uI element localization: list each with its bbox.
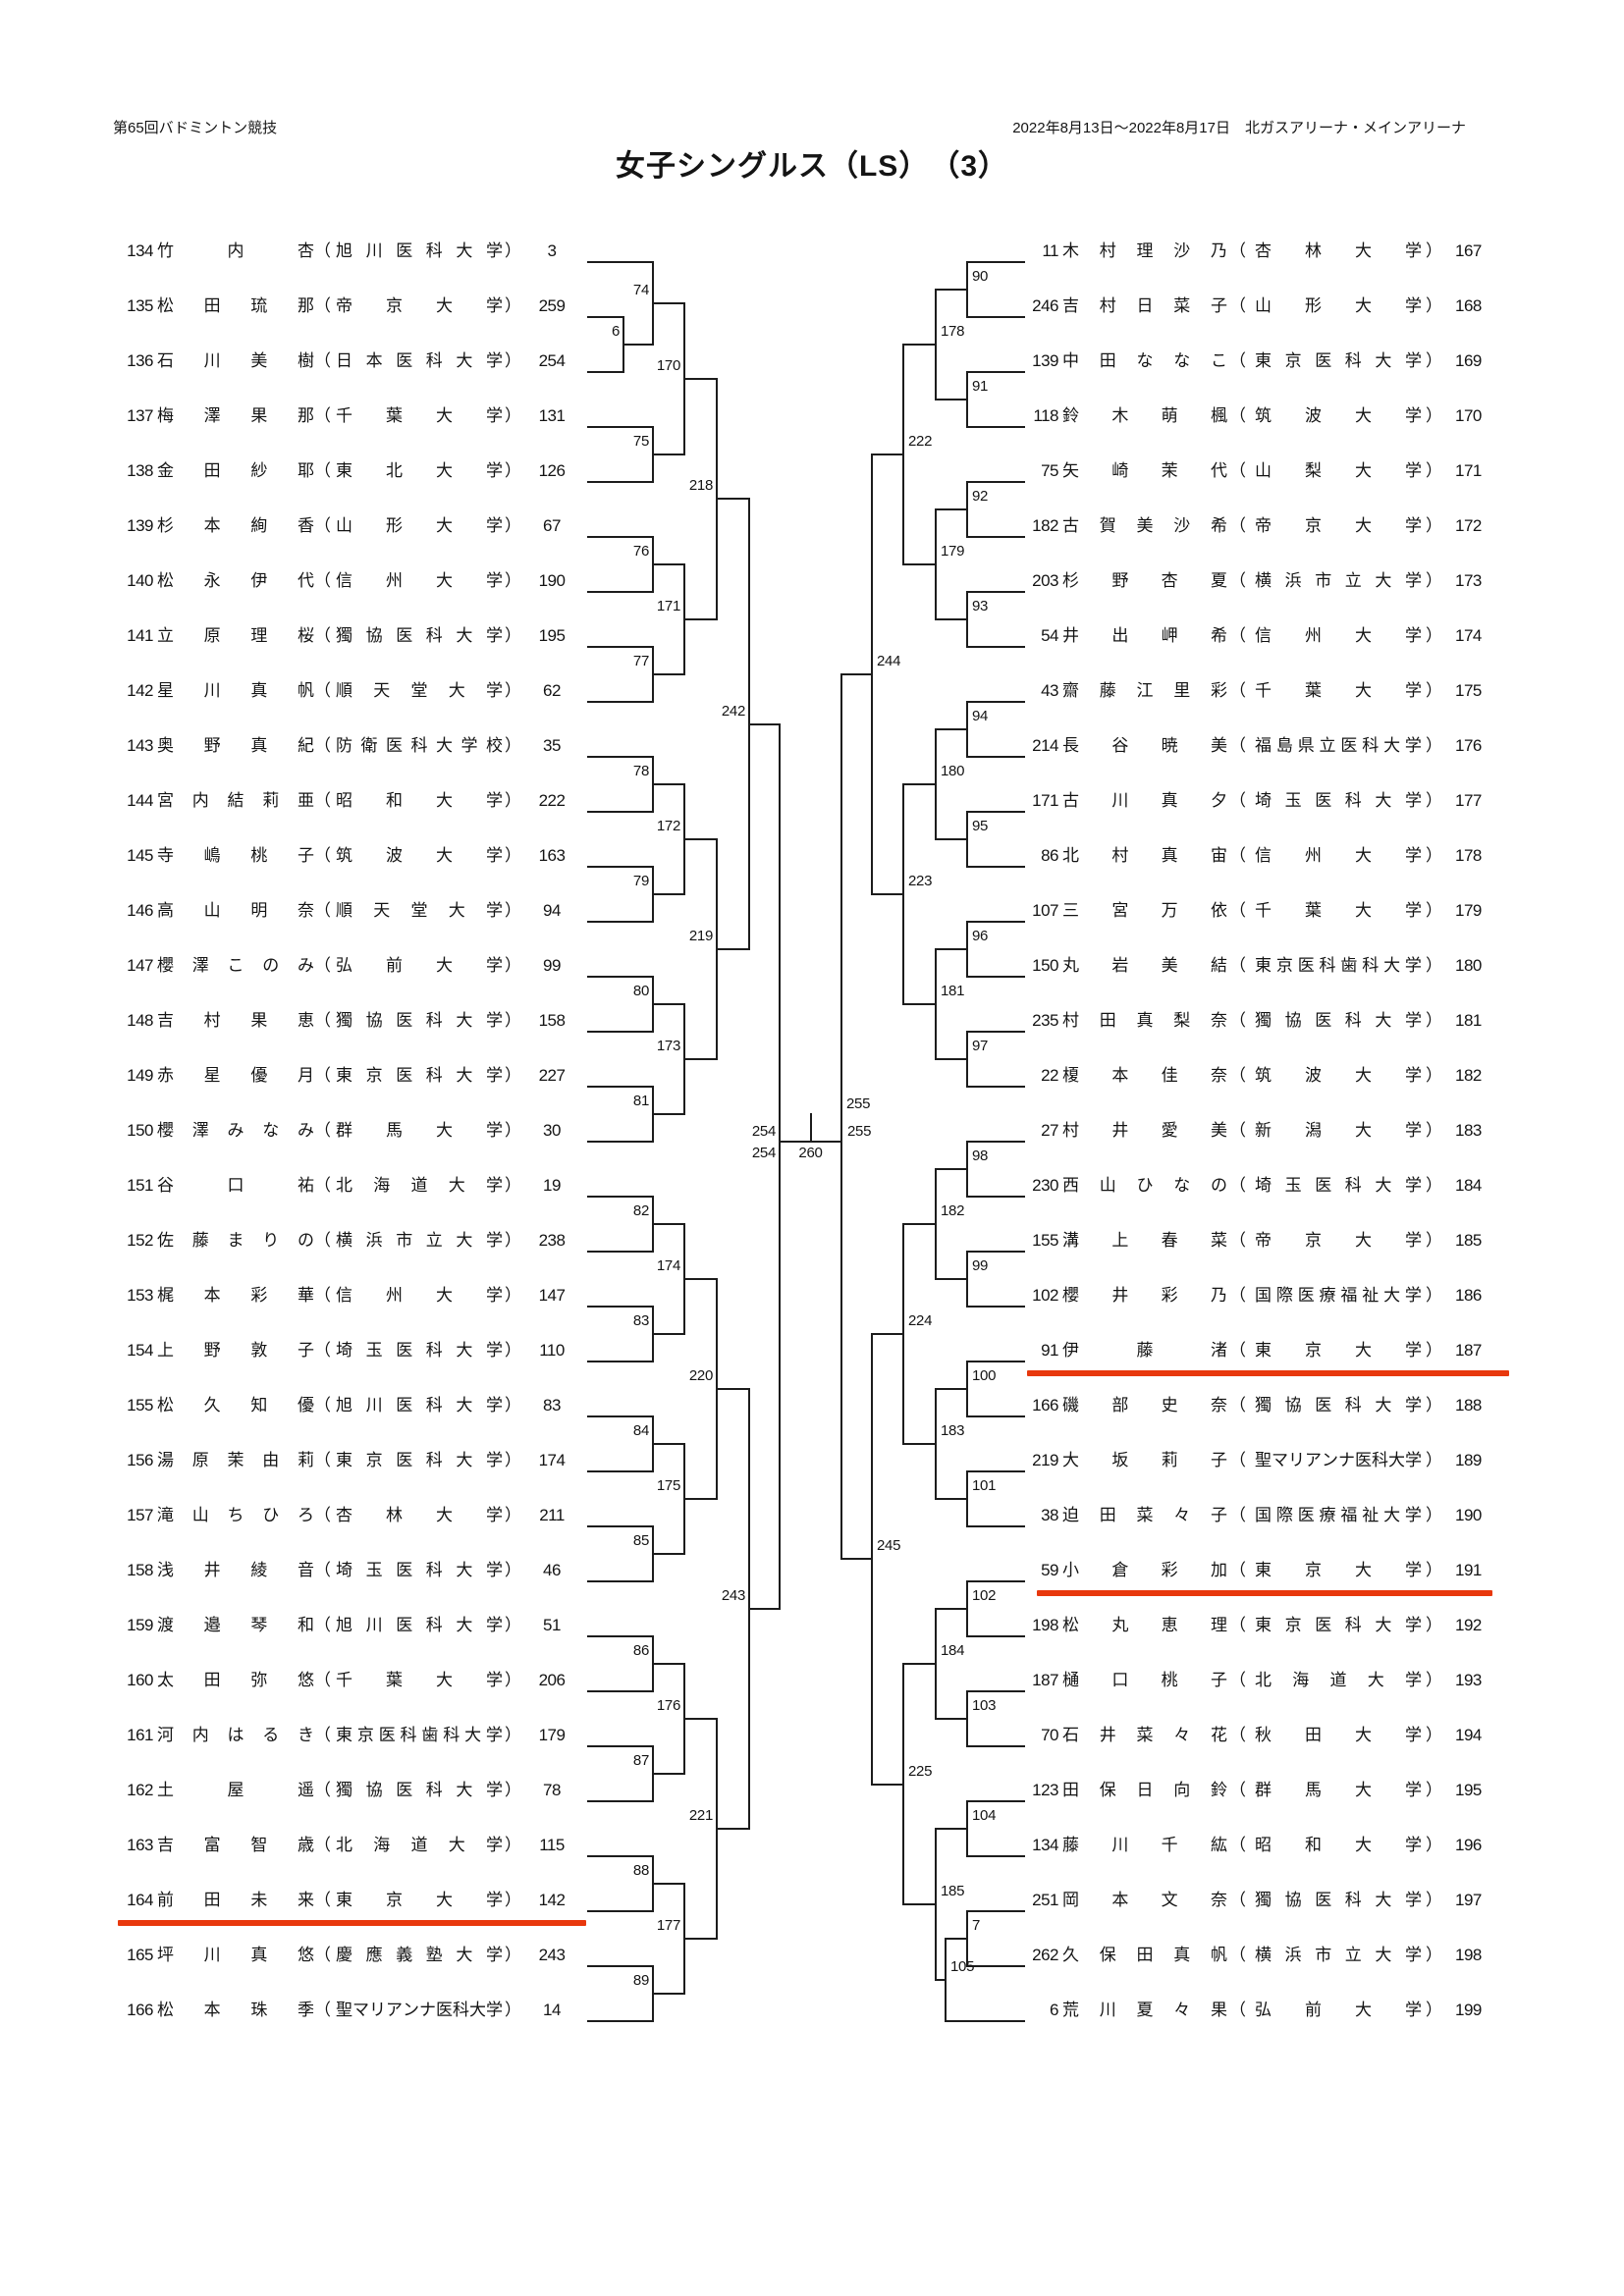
player-school: 帝京大学 bbox=[1255, 516, 1422, 536]
draw-number: 178 bbox=[1455, 846, 1514, 866]
left-player-row: 149赤星優月（東京医科大学）227 bbox=[116, 1066, 587, 1086]
left-player-row: 156湯原茉由莉（東京医科大学）174 bbox=[116, 1451, 587, 1470]
player-number: 123 bbox=[1027, 1781, 1058, 1800]
player-school: 杏林大学 bbox=[1255, 241, 1422, 261]
draw-number: 168 bbox=[1455, 296, 1514, 316]
left-player-row: 147櫻澤このみ（弘前大学）99 bbox=[116, 956, 587, 976]
player-number: 142 bbox=[116, 681, 153, 701]
seed-number: 3 bbox=[522, 241, 581, 261]
entry-line bbox=[967, 921, 1025, 923]
match-number: 254 bbox=[717, 1146, 776, 1161]
entry-line bbox=[967, 426, 1025, 428]
winner-line bbox=[653, 1003, 684, 1005]
winner-line bbox=[684, 1278, 717, 1280]
player-school: 信州大学 bbox=[1255, 626, 1422, 646]
player-school: 北海道大学 bbox=[1255, 1671, 1422, 1690]
seed-number: 110 bbox=[522, 1341, 581, 1361]
player-number: 136 bbox=[116, 351, 153, 371]
match-number: 244 bbox=[877, 654, 936, 669]
match-number: 255 bbox=[846, 1096, 905, 1112]
paren-open: （ bbox=[314, 1616, 332, 1635]
paren-open: （ bbox=[1229, 1836, 1247, 1855]
player-name: 迫田菜々子 bbox=[1062, 1506, 1227, 1525]
left-player-row: 159渡邉琴和（旭川医科大学）51 bbox=[116, 1616, 587, 1635]
paren-open: （ bbox=[1229, 1176, 1247, 1196]
draw-number: 193 bbox=[1455, 1671, 1514, 1690]
seed-number: 174 bbox=[522, 1451, 581, 1470]
right-player-row: 155溝上春菜（帝京大学）185 bbox=[1027, 1231, 1512, 1251]
paren-close: ） bbox=[1426, 1231, 1443, 1251]
seed-number: 163 bbox=[522, 846, 581, 866]
seed-number: 115 bbox=[522, 1836, 581, 1855]
player-number: 166 bbox=[116, 2001, 153, 2020]
highlight-underline bbox=[118, 1920, 586, 1926]
player-school: 群馬大学 bbox=[336, 1121, 503, 1141]
player-number: 251 bbox=[1027, 1891, 1058, 1910]
player-school: 獨協医科大学 bbox=[336, 626, 503, 646]
player-name: 磯部史奈 bbox=[1062, 1396, 1227, 1415]
left-player-row: 153梶本彩華（信州大学）147 bbox=[116, 1286, 587, 1306]
paren-close: ） bbox=[505, 296, 522, 316]
entry-line bbox=[967, 1306, 1025, 1308]
draw-number: 182 bbox=[1455, 1066, 1514, 1086]
paren-close: ） bbox=[1426, 1506, 1443, 1525]
match-number: 184 bbox=[941, 1643, 1000, 1659]
winner-line bbox=[653, 783, 684, 785]
paren-open: （ bbox=[1229, 406, 1247, 426]
entry-line bbox=[587, 1141, 653, 1143]
match-number: 103 bbox=[972, 1698, 1031, 1714]
right-player-row: 70石井菜々花（秋田大学）194 bbox=[1027, 1726, 1512, 1745]
right-player-row: 198松丸恵理（東京医科大学）192 bbox=[1027, 1616, 1512, 1635]
paren-close: ） bbox=[1426, 1891, 1443, 1910]
entry-line bbox=[967, 701, 1025, 703]
player-school: 順天堂大学 bbox=[336, 901, 503, 921]
paren-close: ） bbox=[1426, 241, 1443, 261]
player-name: 井出岬希 bbox=[1062, 626, 1227, 646]
paren-open: （ bbox=[314, 1231, 332, 1251]
winner-line bbox=[653, 673, 684, 675]
player-school: 埼玉医科大学 bbox=[336, 1341, 503, 1361]
player-name: 櫻澤このみ bbox=[157, 956, 314, 976]
paren-open: （ bbox=[1229, 351, 1247, 371]
paren-close: ） bbox=[505, 241, 522, 261]
paren-close: ） bbox=[505, 1396, 522, 1415]
left-player-row: 146高山明奈（順天堂大学）94 bbox=[116, 901, 587, 921]
seed-number: 62 bbox=[522, 681, 581, 701]
player-number: 156 bbox=[116, 1451, 153, 1470]
player-number: 155 bbox=[1027, 1231, 1058, 1251]
winner-line bbox=[936, 1168, 967, 1170]
match-number: 88 bbox=[590, 1863, 649, 1879]
paren-open: （ bbox=[1229, 1506, 1247, 1525]
player-number: 139 bbox=[1027, 351, 1058, 371]
winner-line bbox=[653, 1223, 684, 1225]
player-number: 219 bbox=[1027, 1451, 1058, 1470]
paren-open: （ bbox=[314, 1341, 332, 1361]
player-name: 溝上春菜 bbox=[1062, 1231, 1227, 1251]
seed-number: 51 bbox=[522, 1616, 581, 1635]
paren-close: ） bbox=[1426, 351, 1443, 371]
player-name: 古川真夕 bbox=[1062, 791, 1227, 811]
paren-close: ） bbox=[505, 1616, 522, 1635]
paren-close: ） bbox=[505, 791, 522, 811]
left-player-row: 144宮内結莉亜（昭和大学）222 bbox=[116, 791, 587, 811]
winner-line bbox=[717, 1828, 749, 1830]
player-name: 土屋遥 bbox=[157, 1781, 314, 1800]
draw-number: 196 bbox=[1455, 1836, 1514, 1855]
player-number: 246 bbox=[1027, 296, 1058, 316]
player-school: 獨協医科大学 bbox=[336, 1011, 503, 1031]
match-number: 78 bbox=[590, 764, 649, 779]
match-number: 101 bbox=[972, 1478, 1031, 1494]
winner-line bbox=[903, 344, 936, 346]
right-player-row: 171古川真夕（埼玉医科大学）177 bbox=[1027, 791, 1512, 811]
semifinal-number-right: 255 bbox=[847, 1124, 906, 1140]
paren-open: （ bbox=[314, 681, 332, 701]
seed-number: 206 bbox=[522, 1671, 581, 1690]
right-player-row: 214長谷暁美（福島県立医科大学）176 bbox=[1027, 736, 1512, 756]
player-school: 信州大学 bbox=[336, 1286, 503, 1306]
paren-close: ） bbox=[1426, 1011, 1443, 1031]
entry-line bbox=[587, 1470, 653, 1472]
entry-line bbox=[967, 1086, 1025, 1088]
player-name: 湯原茉由莉 bbox=[157, 1451, 314, 1470]
date-venue: 2022年8月13日～2022年8月17日 北ガスアリーナ・メインアリーナ bbox=[1012, 117, 1466, 137]
player-name: 渡邉琴和 bbox=[157, 1616, 314, 1635]
entry-line bbox=[967, 756, 1025, 758]
player-name: 樋口桃子 bbox=[1062, 1671, 1227, 1690]
paren-open: （ bbox=[1229, 1396, 1247, 1415]
winner-line bbox=[717, 948, 749, 950]
match-number: 185 bbox=[941, 1884, 1000, 1899]
paren-close: ） bbox=[505, 1836, 522, 1855]
player-number: 230 bbox=[1027, 1176, 1058, 1196]
player-number: 102 bbox=[1027, 1286, 1058, 1306]
paren-close: ） bbox=[1426, 1286, 1443, 1306]
player-number: 187 bbox=[1027, 1671, 1058, 1690]
entry-line bbox=[587, 536, 653, 538]
player-name: 前田未来 bbox=[157, 1891, 314, 1910]
right-player-row: 22榎本佳奈（筑波大学）182 bbox=[1027, 1066, 1512, 1086]
winner-line bbox=[717, 498, 749, 500]
winner-line bbox=[684, 378, 717, 380]
match-number: 178 bbox=[941, 324, 1000, 340]
player-number: 166 bbox=[1027, 1396, 1058, 1415]
player-name: 吉村果恵 bbox=[157, 1011, 314, 1031]
player-name: 大坂莉子 bbox=[1062, 1451, 1227, 1470]
paren-open: （ bbox=[314, 1836, 332, 1855]
winner-line bbox=[903, 563, 936, 565]
seed-number: 238 bbox=[522, 1231, 581, 1251]
draw-number: 198 bbox=[1455, 1946, 1514, 1965]
draw-number: 185 bbox=[1455, 1231, 1514, 1251]
paren-open: （ bbox=[314, 2001, 332, 2020]
paren-close: ） bbox=[505, 846, 522, 866]
entry-line bbox=[587, 1635, 653, 1637]
left-player-row: 145寺嶋桃子（筑波大学）163 bbox=[116, 846, 587, 866]
winner-line bbox=[903, 1003, 936, 1005]
match-number: 94 bbox=[972, 709, 1031, 724]
paren-open: （ bbox=[314, 241, 332, 261]
player-number: 160 bbox=[116, 1671, 153, 1690]
right-player-row: 203杉野杏夏（横浜市立大学）173 bbox=[1027, 571, 1512, 591]
draw-number: 192 bbox=[1455, 1616, 1514, 1635]
paren-close: ） bbox=[505, 351, 522, 371]
player-school: 千葉大学 bbox=[336, 1671, 503, 1690]
match-number: 183 bbox=[941, 1423, 1000, 1439]
entry-line bbox=[587, 1306, 653, 1308]
winner-line bbox=[653, 1993, 684, 1995]
winner-line bbox=[841, 1558, 872, 1560]
player-school: 順天堂大学 bbox=[336, 681, 503, 701]
entry-line bbox=[967, 1855, 1025, 1857]
left-player-row: 151谷口祐（北海道大学）19 bbox=[116, 1176, 587, 1196]
right-player-row: 219大坂莉子（聖マリアンナ医科大学）189 bbox=[1027, 1451, 1512, 1470]
tournament-draw-sheet: 第65回バドミントン競技 2022年8月13日～2022年8月17日 北ガスアリ… bbox=[0, 0, 1624, 2296]
paren-close: ） bbox=[505, 406, 522, 426]
player-school: 日本医科大学 bbox=[336, 351, 503, 371]
paren-open: （ bbox=[1229, 1066, 1247, 1086]
right-player-row: 139中田ななこ（東京医科大学）169 bbox=[1027, 351, 1512, 371]
player-name: 滝山ちひろ bbox=[157, 1506, 314, 1525]
seed-number: 14 bbox=[522, 2001, 581, 2020]
match-number: 89 bbox=[590, 1973, 649, 1989]
draw-number: 179 bbox=[1455, 901, 1514, 921]
right-player-row: 102櫻井彩乃（国際医療福祉大学）186 bbox=[1027, 1286, 1512, 1306]
entry-line bbox=[587, 1690, 653, 1692]
player-name: 櫻井彩乃 bbox=[1062, 1286, 1227, 1306]
draw-number: 190 bbox=[1455, 1506, 1514, 1525]
match-bracket bbox=[840, 673, 842, 1561]
paren-open: （ bbox=[1229, 241, 1247, 261]
player-number: 141 bbox=[116, 626, 153, 646]
paren-open: （ bbox=[1229, 461, 1247, 481]
player-school: 獨協医科大学 bbox=[336, 1781, 503, 1800]
player-name: 久保田真帆 bbox=[1062, 1946, 1227, 1965]
player-school: 東京医科大学 bbox=[1255, 1616, 1422, 1635]
paren-close: ） bbox=[505, 2001, 522, 2020]
left-player-row: 155松久知優（旭川医科大学）83 bbox=[116, 1396, 587, 1415]
paren-close: ） bbox=[1426, 1066, 1443, 1086]
player-school: 横浜市立大学 bbox=[336, 1231, 503, 1251]
entry-line bbox=[967, 481, 1025, 483]
winner-line bbox=[936, 618, 967, 620]
match-number: 90 bbox=[972, 269, 1031, 285]
entry-line bbox=[587, 921, 653, 923]
player-number: 134 bbox=[116, 241, 153, 261]
paren-close: ） bbox=[1426, 406, 1443, 426]
draw-number: 180 bbox=[1455, 956, 1514, 976]
entry-line bbox=[587, 976, 653, 978]
winner-line bbox=[936, 728, 967, 730]
player-name: 木村理沙乃 bbox=[1062, 241, 1227, 261]
entry-line bbox=[967, 371, 1025, 373]
match-number: 177 bbox=[622, 1918, 680, 1934]
player-number: 151 bbox=[116, 1176, 153, 1196]
right-player-row: 11木村理沙乃（杏林大学）167 bbox=[1027, 241, 1512, 261]
draw-number: 177 bbox=[1455, 791, 1514, 811]
player-number: 162 bbox=[116, 1781, 153, 1800]
left-player-row: 161河内はるき（東京医科歯科大学）179 bbox=[116, 1726, 587, 1745]
player-name: 奥野真紀 bbox=[157, 736, 314, 756]
entry-line bbox=[967, 1580, 1025, 1582]
player-name: 石井菜々花 bbox=[1062, 1726, 1227, 1745]
seed-number: 67 bbox=[522, 516, 581, 536]
paren-close: ） bbox=[1426, 846, 1443, 866]
right-player-row: 38迫田菜々子（国際医療福祉大学）190 bbox=[1027, 1506, 1512, 1525]
player-number: 214 bbox=[1027, 736, 1058, 756]
match-number: 182 bbox=[941, 1203, 1000, 1219]
winner-line bbox=[653, 1443, 684, 1445]
paren-open: （ bbox=[1229, 1726, 1247, 1745]
seed-number: 126 bbox=[522, 461, 581, 481]
player-number: 137 bbox=[116, 406, 153, 426]
player-number: 159 bbox=[116, 1616, 153, 1635]
player-school: 千葉大学 bbox=[1255, 901, 1422, 921]
paren-close: ） bbox=[1426, 791, 1443, 811]
match-number: 85 bbox=[590, 1533, 649, 1549]
right-player-row: 246吉村日菜子（山形大学）168 bbox=[1027, 296, 1512, 316]
player-number: 150 bbox=[116, 1121, 153, 1141]
player-name: 中田ななこ bbox=[1062, 351, 1227, 371]
final-match-number: 260 bbox=[772, 1146, 850, 1161]
winner-line bbox=[749, 723, 780, 725]
match-number: 93 bbox=[972, 599, 1031, 614]
player-school: 福島県立医科大学 bbox=[1255, 736, 1422, 756]
player-school: 東京医科大学 bbox=[1255, 351, 1422, 371]
winner-line bbox=[936, 1058, 967, 1060]
right-player-row: 107三宮万依（千葉大学）179 bbox=[1027, 901, 1512, 921]
player-number: 154 bbox=[116, 1341, 153, 1361]
paren-close: ） bbox=[1426, 681, 1443, 701]
left-player-row: 139杉本絢香（山形大学）67 bbox=[116, 516, 587, 536]
player-school: 山形大学 bbox=[336, 516, 503, 536]
player-school: 弘前大学 bbox=[1255, 2001, 1422, 2020]
player-name: 坪川真悠 bbox=[157, 1946, 314, 1965]
left-player-row: 141立原理桜（獨協医科大学）195 bbox=[116, 626, 587, 646]
match-number: 86 bbox=[590, 1643, 649, 1659]
paren-close: ） bbox=[505, 626, 522, 646]
paren-open: （ bbox=[314, 736, 332, 756]
entry-line bbox=[587, 1361, 653, 1362]
right-player-row: 43齋藤江里彩（千葉大学）175 bbox=[1027, 681, 1512, 701]
player-number: 86 bbox=[1027, 846, 1058, 866]
player-name: 田保日向鈴 bbox=[1062, 1781, 1227, 1800]
entry-line bbox=[967, 811, 1025, 813]
player-name: 梶本彩華 bbox=[157, 1286, 314, 1306]
highlight-underline bbox=[1037, 1590, 1492, 1596]
paren-open: （ bbox=[1229, 571, 1247, 591]
draw-number: 170 bbox=[1455, 406, 1514, 426]
draw-number: 169 bbox=[1455, 351, 1514, 371]
entry-line bbox=[967, 1361, 1025, 1362]
entry-line bbox=[587, 316, 623, 318]
paren-open: （ bbox=[1229, 1231, 1247, 1251]
paren-open: （ bbox=[314, 1671, 332, 1690]
right-player-row: 54井出岬希（信州大学）174 bbox=[1027, 626, 1512, 646]
draw-number: 189 bbox=[1455, 1451, 1514, 1470]
paren-close: ） bbox=[1426, 1561, 1443, 1580]
match-bracket bbox=[779, 723, 781, 1611]
entry-line bbox=[967, 866, 1025, 868]
player-name: 上野敦子 bbox=[157, 1341, 314, 1361]
paren-open: （ bbox=[1229, 1616, 1247, 1635]
right-player-row: 27村井愛美（新潟大学）183 bbox=[1027, 1121, 1512, 1141]
match-number: 84 bbox=[590, 1423, 649, 1439]
match-number: 83 bbox=[590, 1313, 649, 1329]
entry-line bbox=[967, 976, 1025, 978]
winner-line bbox=[946, 1938, 967, 1940]
winner-line bbox=[653, 893, 684, 895]
paren-close: ） bbox=[505, 461, 522, 481]
winner-line bbox=[653, 1773, 684, 1775]
entry-line bbox=[587, 1196, 653, 1198]
match-number: 170 bbox=[622, 358, 680, 374]
match-number: 96 bbox=[972, 929, 1031, 944]
draw-number: 171 bbox=[1455, 461, 1514, 481]
player-school: 千葉大学 bbox=[336, 406, 503, 426]
player-number: 155 bbox=[116, 1396, 153, 1415]
paren-close: ） bbox=[1426, 1121, 1443, 1141]
entry-line bbox=[967, 591, 1025, 593]
left-player-row: 164前田未来（東京大学）142 bbox=[116, 1891, 587, 1910]
draw-number: 181 bbox=[1455, 1011, 1514, 1031]
right-player-row: 262久保田真帆（横浜市立大学）198 bbox=[1027, 1946, 1512, 1965]
paren-close: ） bbox=[505, 681, 522, 701]
left-player-row: 135松田琉那（帝京大学）259 bbox=[116, 296, 587, 316]
player-school: 慶應義塾大学 bbox=[336, 1946, 503, 1965]
paren-open: （ bbox=[1229, 791, 1247, 811]
winner-line bbox=[684, 1718, 717, 1720]
left-player-row: 143奥野真紀（防衛医科大学校）35 bbox=[116, 736, 587, 756]
seed-number: 195 bbox=[522, 626, 581, 646]
entry-line bbox=[967, 1745, 1025, 1747]
winner-line bbox=[684, 838, 717, 840]
player-school: 東京大学 bbox=[336, 1891, 503, 1910]
paren-open: （ bbox=[1229, 296, 1247, 316]
player-name: 谷口祐 bbox=[157, 1176, 314, 1196]
draw-number: 186 bbox=[1455, 1286, 1514, 1306]
paren-open: （ bbox=[314, 1946, 332, 1965]
paren-close: ） bbox=[505, 1506, 522, 1525]
player-number: 198 bbox=[1027, 1616, 1058, 1635]
player-name: 星川真帆 bbox=[157, 681, 314, 701]
player-school: 北海道大学 bbox=[336, 1176, 503, 1196]
match-number: 74 bbox=[590, 283, 649, 298]
entry-line bbox=[587, 866, 653, 868]
winner-line bbox=[903, 1223, 936, 1225]
player-name: 太田弥悠 bbox=[157, 1671, 314, 1690]
paren-open: （ bbox=[314, 461, 332, 481]
paren-close: ） bbox=[1426, 296, 1443, 316]
page-title: 女子シングルス（LS） （3） bbox=[0, 141, 1624, 185]
left-player-row: 150櫻澤みなみ（群馬大学）30 bbox=[116, 1121, 587, 1141]
draw-number: 188 bbox=[1455, 1396, 1514, 1415]
seed-number: 227 bbox=[522, 1066, 581, 1086]
paren-close: ） bbox=[505, 1011, 522, 1031]
player-name: 松永伊代 bbox=[157, 571, 314, 591]
entry-line bbox=[967, 1196, 1025, 1198]
paren-open: （ bbox=[314, 626, 332, 646]
player-number: 38 bbox=[1027, 1506, 1058, 1525]
player-name: 松丸恵理 bbox=[1062, 1616, 1227, 1635]
draw-number: 194 bbox=[1455, 1726, 1514, 1745]
player-school: 獨協医科大学 bbox=[1255, 1396, 1422, 1415]
seed-number: 211 bbox=[522, 1506, 581, 1525]
player-number: 70 bbox=[1027, 1726, 1058, 1745]
paren-close: ） bbox=[1426, 626, 1443, 646]
